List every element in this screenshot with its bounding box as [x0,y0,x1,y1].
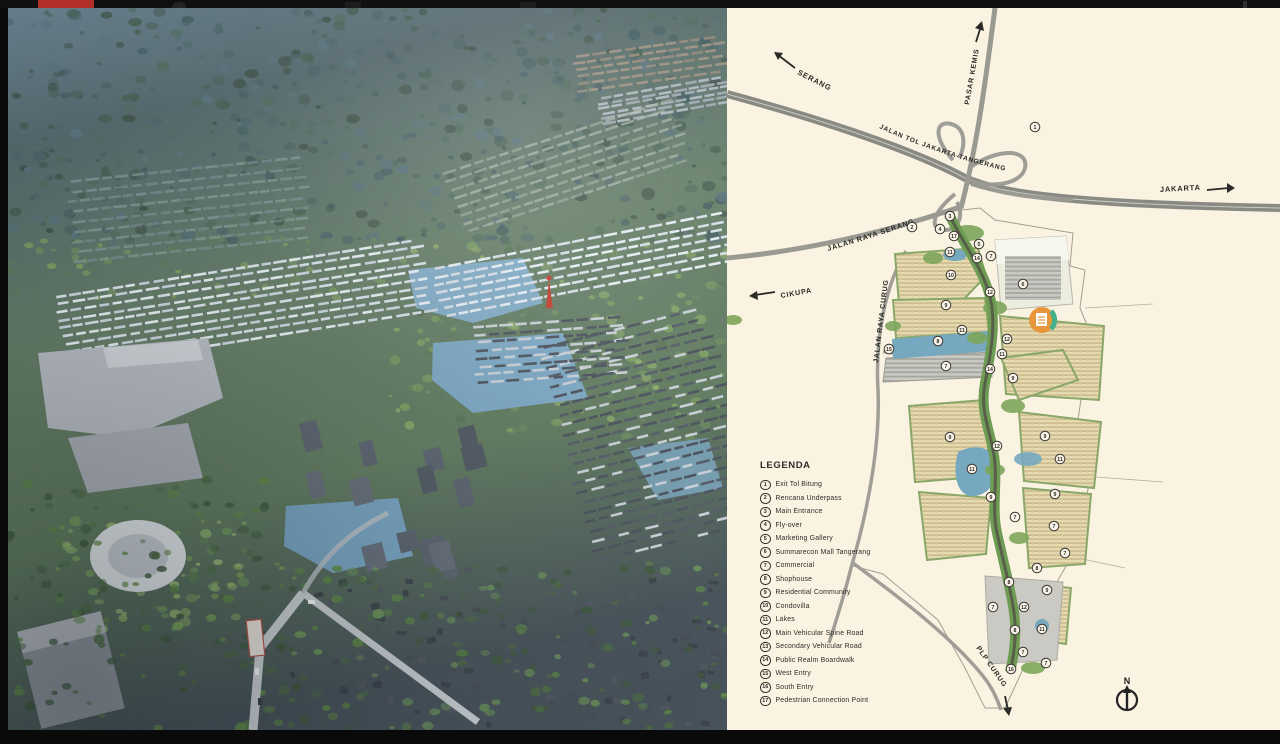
map-marker-12: 12 [992,441,1002,451]
map-marker-7: 7 [988,602,998,612]
legend-item-number: 12 [760,628,771,639]
map-marker-9: 9 [1008,373,1018,383]
map-marker-7: 7 [1060,548,1070,558]
legend-item-16: 16South Entry [760,681,960,695]
aerial-render-svg [8,8,727,730]
legend-item-number: 11 [760,615,771,626]
map-marker-6: 6 [1018,279,1028,289]
north-compass-icon: N [1117,676,1137,710]
map-marker-7: 7 [941,361,951,371]
legend-item-number: 4 [760,520,771,531]
legend-items: 1Exit Tol Bitung2Rencana Underpass3Main … [760,478,960,708]
map-marker-8: 8 [1010,625,1020,635]
svg-text:7: 7 [1014,515,1017,521]
arrow-cikupa-icon [749,291,775,300]
map-marker-7: 7 [1041,658,1051,668]
map-marker-5: 5 [974,239,984,249]
map-marker-8: 8 [1032,563,1042,573]
svg-text:2: 2 [911,225,914,231]
svg-text:15: 15 [886,347,892,353]
legend-item-17: 17Pedestrian Connection Point [760,694,960,708]
legend-item-7: 7Commercial [760,559,960,573]
map-marker-4: 4 [935,224,945,234]
red-logo-icon [38,0,94,8]
svg-text:11: 11 [947,250,953,256]
svg-text:6: 6 [1022,282,1025,288]
legend-item-label: South Entry [776,684,814,691]
map-marker-12: 12 [1019,602,1029,612]
label-serang: SERANG [796,68,833,93]
svg-text:12: 12 [994,444,1000,450]
cropped-toolbar [0,0,1280,8]
arrow-jakarta-icon [1207,183,1235,193]
svg-text:8: 8 [937,339,940,345]
map-marker-9: 9 [941,300,951,310]
legend-item-label: Public Realm Boardwalk [776,657,855,664]
legend-item-number: 14 [760,655,771,666]
legend-item-label: Rencana Underpass [776,495,842,502]
svg-text:4: 4 [939,227,942,233]
svg-text:7: 7 [1053,524,1056,530]
svg-text:11: 11 [969,467,975,473]
map-marker-11: 11 [957,325,967,335]
map-marker-9: 9 [1040,431,1050,441]
legend-item-number: 3 [760,507,771,518]
legend-title: LEGENDA [760,460,960,471]
svg-text:7: 7 [1022,650,1025,656]
legend-item-number: 7 [760,561,771,572]
map-marker-8: 8 [1004,577,1014,587]
legend-item-2: 2Rencana Underpass [760,492,960,506]
legend-item-1: 1Exit Tol Bitung [760,478,960,492]
legend-item-6: 6Summarecon Mall Tangerang [760,546,960,560]
legend-item-14: 14Public Realm Boardwalk [760,654,960,668]
legend-item-11: 11Lakes [760,613,960,627]
map-marker-2: 2 [907,222,917,232]
svg-text:1: 1 [1034,125,1037,131]
map-marker-9: 9 [1042,585,1052,595]
legend-item-label: Exit Tol Bitung [776,481,823,488]
legend-item-5: 5Marketing Gallery [760,532,960,546]
road-jalan-raya-serang [727,206,963,258]
legend-item-label: Fly-over [776,522,802,529]
svg-text:11: 11 [1039,627,1045,633]
map-marker-14: 14 [972,253,982,263]
legend-item-12: 12Main Vehicular Spine Road [760,627,960,641]
svg-text:8: 8 [1036,566,1039,572]
map-marker-3: 3 [945,211,955,221]
legend-item-number: 1 [760,480,771,491]
svg-text:11: 11 [1057,457,1063,463]
legend-item-label: Lakes [776,616,795,623]
map-marker-7: 7 [1010,512,1020,522]
legend-item-number: 2 [760,493,771,504]
map-marker-9: 9 [1050,489,1060,499]
svg-text:7: 7 [1064,551,1067,557]
svg-text:7: 7 [1045,661,1048,667]
legend-item-label: Summarecon Mall Tangerang [776,549,871,556]
svg-text:7: 7 [992,605,995,611]
legend-item-4: 4Fly-over [760,519,960,533]
project-badge-icon [1029,307,1055,333]
legend-item-label: Commercial [776,562,815,569]
arrow-serang-icon [774,52,795,68]
legend-item-label: Marketing Gallery [776,535,833,542]
svg-text:9: 9 [1054,492,1057,498]
svg-text:12: 12 [987,290,993,296]
label-jakarta: JAKARTA [1160,183,1201,194]
legend-item-number: 10 [760,601,771,612]
svg-text:9: 9 [1046,588,1049,594]
legend-item-number: 5 [760,534,771,545]
map-marker-7: 7 [1049,521,1059,531]
svg-text:7: 7 [990,254,993,260]
legend-item-8: 8Shophouse [760,573,960,587]
legend-item-number: 8 [760,574,771,585]
map-marker-9: 9 [986,492,996,502]
map-marker-12: 12 [1002,334,1012,344]
svg-text:17: 17 [951,234,957,240]
legend-item-3: 3Main Entrance [760,505,960,519]
aerial-render-image [8,8,727,730]
svg-text:12: 12 [1021,605,1027,611]
legend-item-label: Main Entrance [776,508,823,515]
legend: LEGENDA 1Exit Tol Bitung2Rencana Underpa… [760,460,960,708]
bottom-black-strip [0,730,1280,744]
map-marker-17: 17 [949,231,959,241]
legend-item-label: Residential Community [776,589,851,596]
legend-item-number: 17 [760,696,771,707]
label-jalan-raya-serang: JALAN RAYA SERANG [826,216,916,253]
legend-item-9: 9Residential Community [760,586,960,600]
svg-text:12: 12 [1004,337,1010,343]
map-marker-11: 11 [1055,454,1065,464]
map-marker-12: 12 [985,287,995,297]
map-marker-11: 11 [1037,624,1047,634]
map-marker-10: 10 [946,270,956,280]
svg-text:9: 9 [1012,376,1015,382]
legend-item-number: 15 [760,669,771,680]
map-marker-7: 7 [986,251,996,261]
svg-text:9: 9 [949,435,952,441]
legend-item-label: Pedestrian Connection Point [776,697,869,704]
legend-item-number: 16 [760,682,771,693]
masterplan-panel: SERANG PASAR KEMIS JAKARTA JALAN TOL JAK… [727,8,1280,730]
legend-item-label: West Entry [776,670,812,677]
map-marker-11: 11 [997,349,1007,359]
svg-text:11: 11 [999,352,1005,358]
svg-text:16: 16 [1008,667,1014,673]
svg-text:8: 8 [1008,580,1011,586]
map-marker-16: 16 [1006,664,1016,674]
map-marker-1: 1 [1030,122,1040,132]
svg-text:9: 9 [990,495,993,501]
legend-item-number: 9 [760,588,771,599]
svg-text:14: 14 [987,367,993,373]
compass-label: N [1124,676,1131,686]
svg-text:11: 11 [959,328,965,334]
map-marker-7: 7 [1018,647,1028,657]
svg-text:7: 7 [945,364,948,370]
legend-item-13: 13Secondary Vehicular Road [760,640,960,654]
legend-item-number: 6 [760,547,771,558]
legend-item-number: 13 [760,642,771,653]
svg-text:9: 9 [1044,434,1047,440]
arrow-plp-curug-icon [1003,696,1012,716]
label-pasar-kemis: PASAR KEMIS [964,48,981,105]
svg-text:5: 5 [978,242,981,248]
map-marker-15: 15 [884,344,894,354]
map-marker-14: 14 [985,364,995,374]
svg-text:9: 9 [945,303,948,309]
legend-item-label: Main Vehicular Spine Road [776,630,864,637]
legend-item-10: 10Condovilla [760,600,960,614]
arrow-pasar-kemis-icon [975,21,984,42]
map-marker-11: 11 [967,464,977,474]
legend-item-label: Condovilla [776,603,810,610]
svg-text:10: 10 [948,273,954,279]
map-marker-11: 11 [945,247,955,257]
slide-canvas: { "legend": { "title": "LEGENDA", "items… [0,0,1280,744]
legend-item-label: Secondary Vehicular Road [776,643,862,650]
toolbar-chip-icon [1243,1,1247,8]
svg-text:14: 14 [974,256,980,262]
label-cikupa: CIKUPA [780,286,813,300]
svg-text:3: 3 [949,214,952,220]
render-vignette-overlay [8,8,727,730]
legend-item-15: 15West Entry [760,667,960,681]
svg-text:8: 8 [1014,628,1017,634]
legend-item-label: Shophouse [776,576,813,583]
map-marker-8: 8 [933,336,943,346]
map-marker-9: 9 [945,432,955,442]
